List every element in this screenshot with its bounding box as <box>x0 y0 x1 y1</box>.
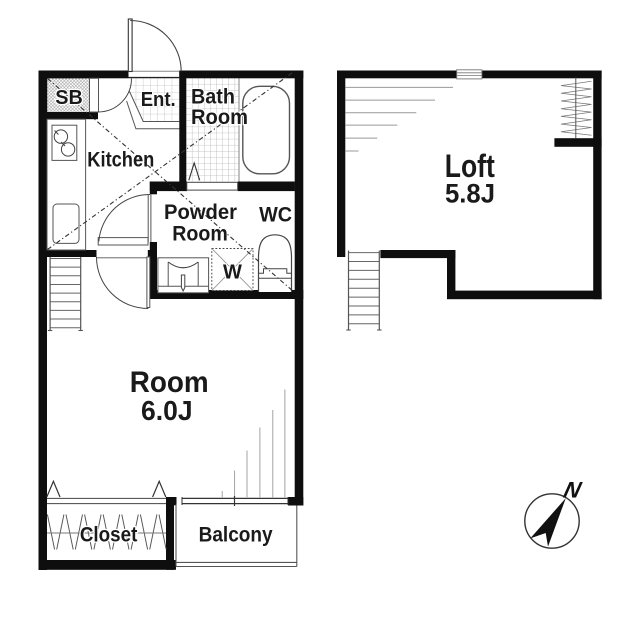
svg-text:SB: SB <box>55 86 83 109</box>
svg-text:W: W <box>223 262 242 284</box>
svg-text:Closet: Closet <box>80 523 138 547</box>
svg-text:Balcony: Balcony <box>199 523 273 547</box>
svg-text:Room: Room <box>191 105 248 129</box>
svg-text:Powder: Powder <box>164 201 237 224</box>
svg-text:6.0J: 6.0J <box>141 395 193 426</box>
svg-text:5.8J: 5.8J <box>445 178 495 208</box>
svg-text:WC: WC <box>259 202 292 226</box>
svg-text:Ent.: Ent. <box>141 89 176 111</box>
svg-text:Kitchen: Kitchen <box>87 148 154 171</box>
svg-text:Room: Room <box>172 223 228 246</box>
